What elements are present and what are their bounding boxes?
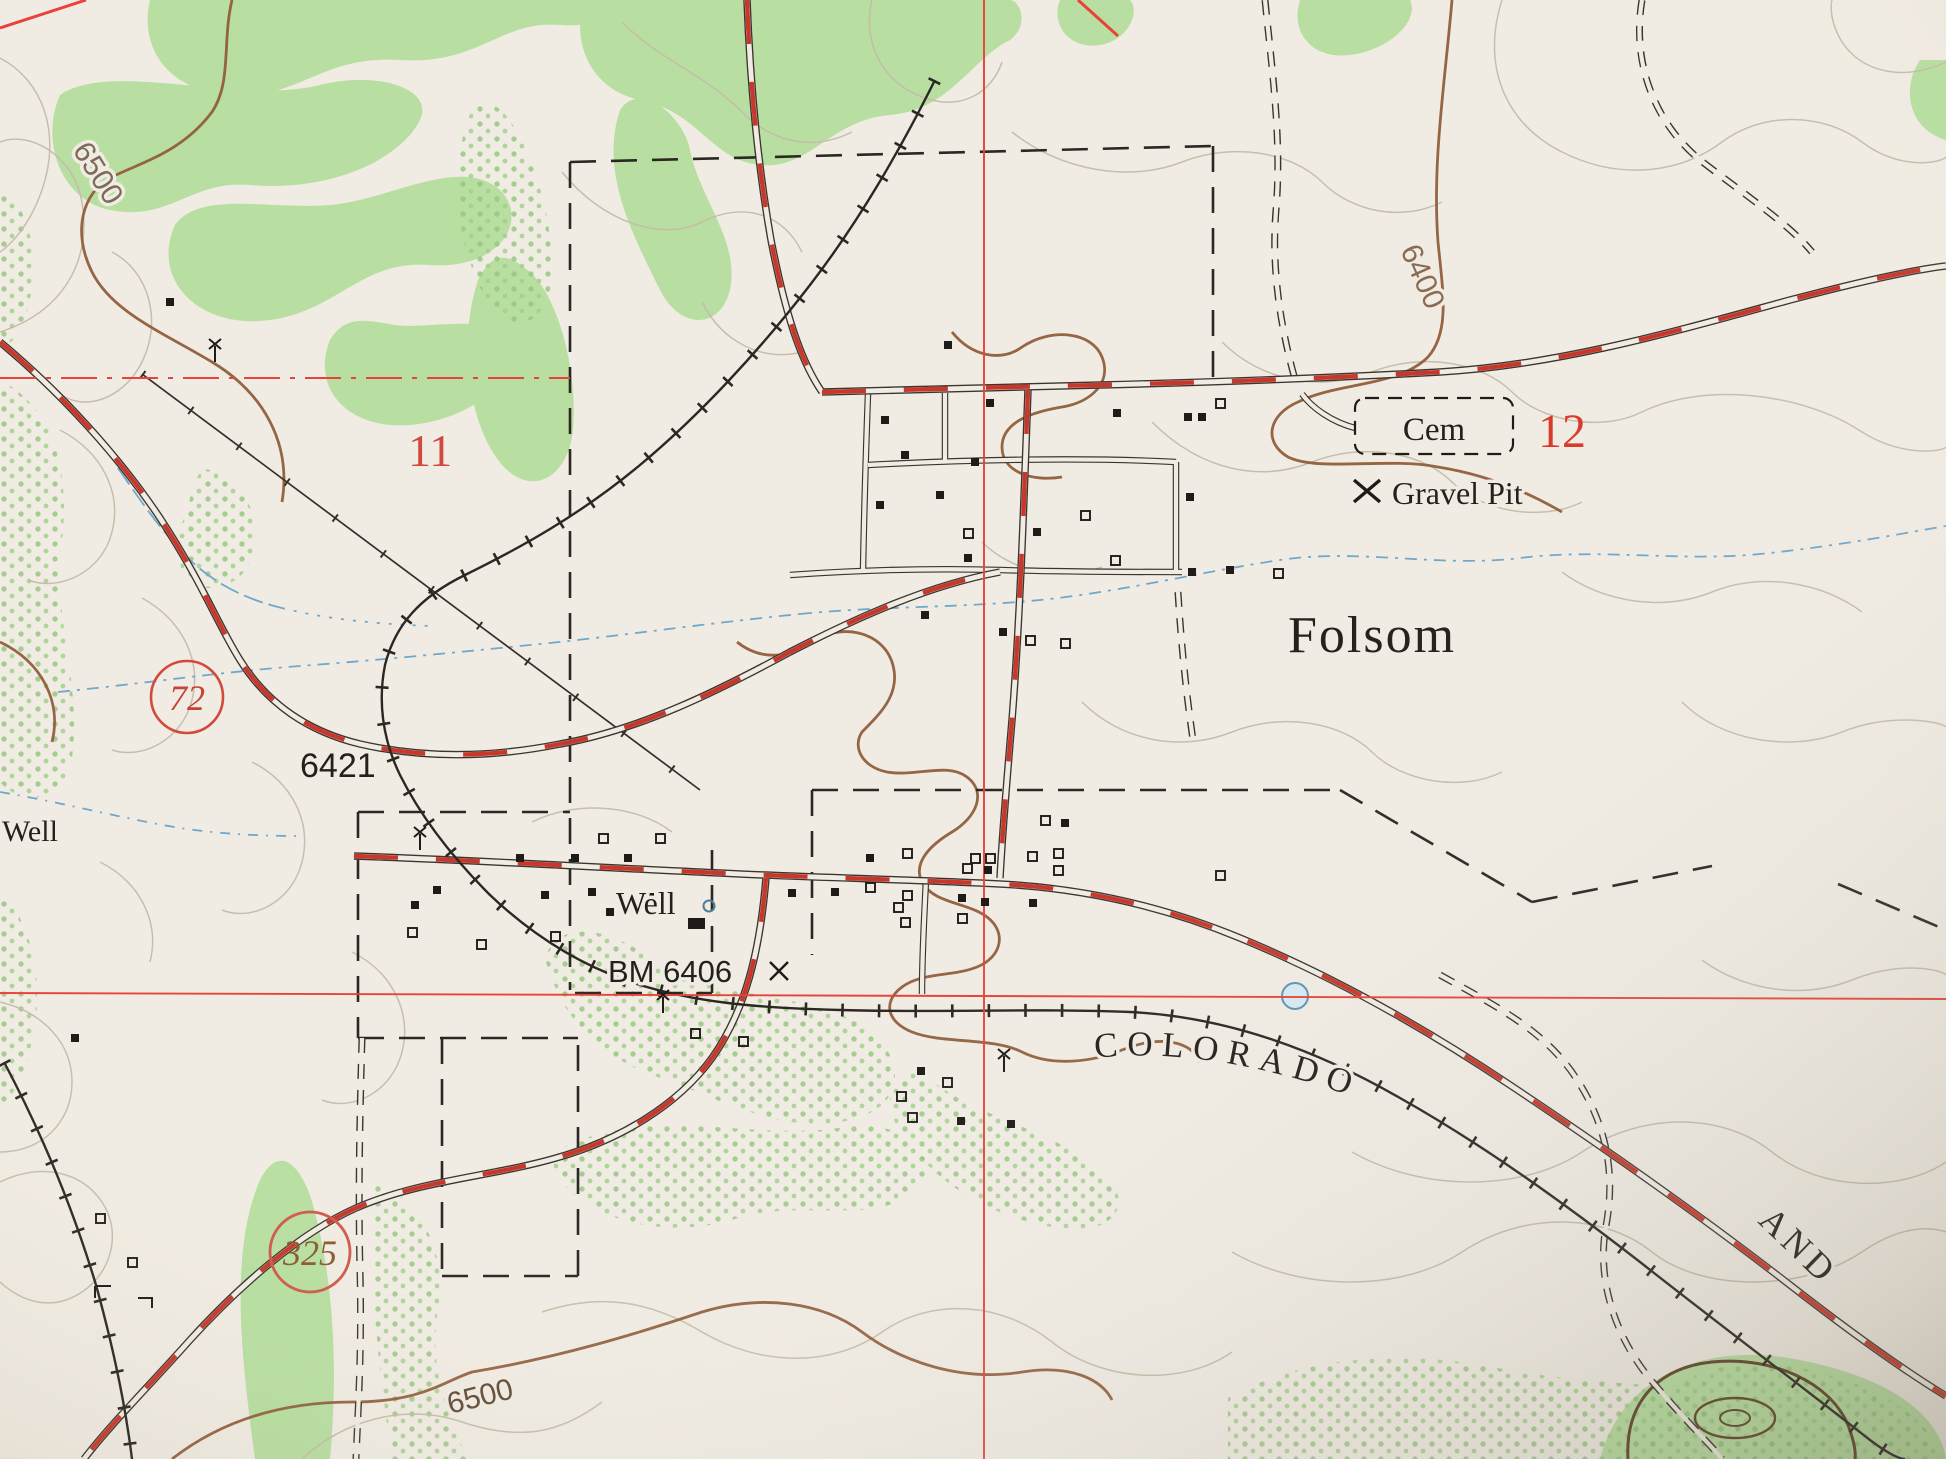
label-railroad-elev: 6421: [300, 747, 376, 785]
label-section-12: 12: [1538, 405, 1586, 458]
route-72-number: 72: [169, 678, 205, 718]
label-benchmark: BM 6406: [608, 954, 732, 989]
label-section-11: 11: [408, 425, 452, 476]
label-cemetery: Cem: [1403, 412, 1466, 448]
pond: [1282, 983, 1308, 1009]
route-325-number: 325: [282, 1233, 337, 1273]
label-town: Folsom: [1288, 607, 1456, 664]
label-well-left: Well: [2, 815, 58, 848]
topo-map-photo: 72 325 Folsom Cem Gravel Pit 11 12 Well …: [0, 0, 1946, 1459]
label-well-center: Well: [616, 885, 676, 921]
label-gravel-pit: Gravel Pit: [1392, 475, 1523, 511]
